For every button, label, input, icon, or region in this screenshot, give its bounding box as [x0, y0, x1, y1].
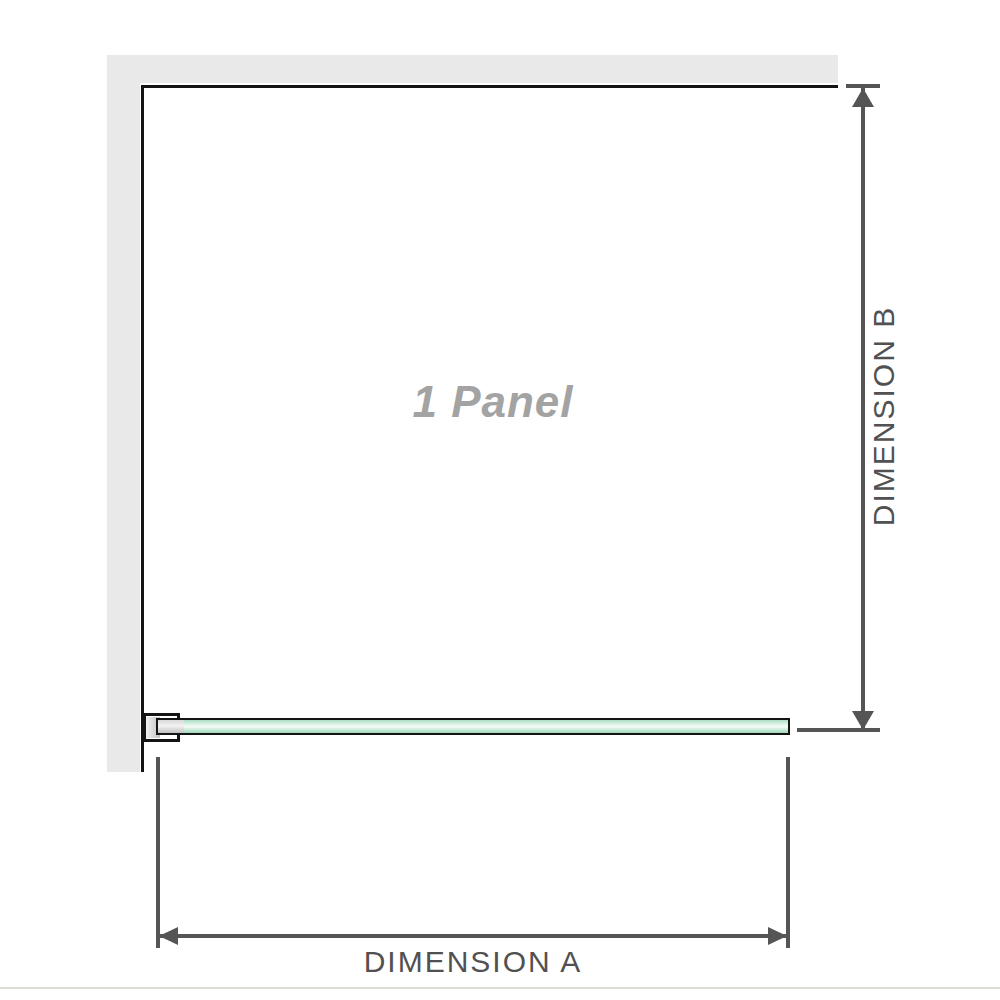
wall-top-segment: [107, 55, 838, 83]
arrow-right-icon: [768, 927, 787, 945]
arrow-left-icon: [159, 927, 178, 945]
panel-outline-top: [141, 85, 838, 88]
dimension-a-label: DIMENSION A: [323, 944, 623, 980]
panel-label: 1 Panel: [143, 372, 843, 432]
glass-panel-clamp-end: [158, 720, 184, 733]
arrow-up-icon: [852, 88, 874, 107]
glass-panel-bar: [156, 718, 790, 735]
dimension-a-left-extension: [156, 757, 160, 948]
dimension-a-right-extension: [786, 757, 790, 948]
dimension-b-label: DIMENSION B: [868, 266, 900, 566]
dimension-b-line: [861, 88, 865, 730]
wall-left-segment: [107, 55, 140, 772]
page-divider: [0, 987, 1000, 989]
arrow-down-icon: [852, 711, 874, 730]
dimension-a-line: [160, 934, 786, 938]
